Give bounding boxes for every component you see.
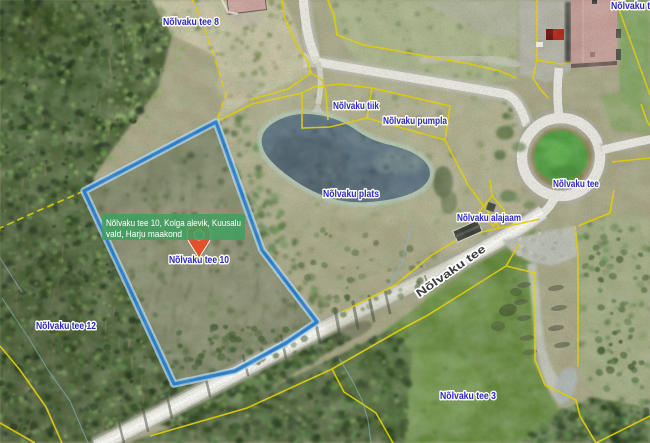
- svg-text:Nõlvaku tee 10, Kolga alevik,: Nõlvaku tee 10, Kolga alevik, Kuusalu: [106, 218, 241, 229]
- svg-text:Nõlvaku plats: Nõlvaku plats: [323, 189, 379, 200]
- svg-text:Nõlvaku tee 3: Nõlvaku tee 3: [440, 391, 496, 402]
- svg-text:Nõlvaku tee 12: Nõlvaku tee 12: [36, 321, 96, 332]
- svg-text:Nõlvaku pumpla: Nõlvaku pumpla: [383, 116, 447, 127]
- svg-text:vald, Harju maakond: vald, Harju maakond: [106, 229, 182, 240]
- svg-text:Nõlvaku tee 8: Nõlvaku tee 8: [163, 17, 219, 28]
- svg-text:Nõlvaku tiik: Nõlvaku tiik: [333, 101, 379, 112]
- svg-text:Nõlvaku tsiklimaja: Nõlvaku tsiklimaja: [611, 1, 650, 12]
- svg-text:Nõlvaku tee: Nõlvaku tee: [553, 179, 599, 190]
- svg-text:Nõlvaku alajaam: Nõlvaku alajaam: [457, 213, 521, 224]
